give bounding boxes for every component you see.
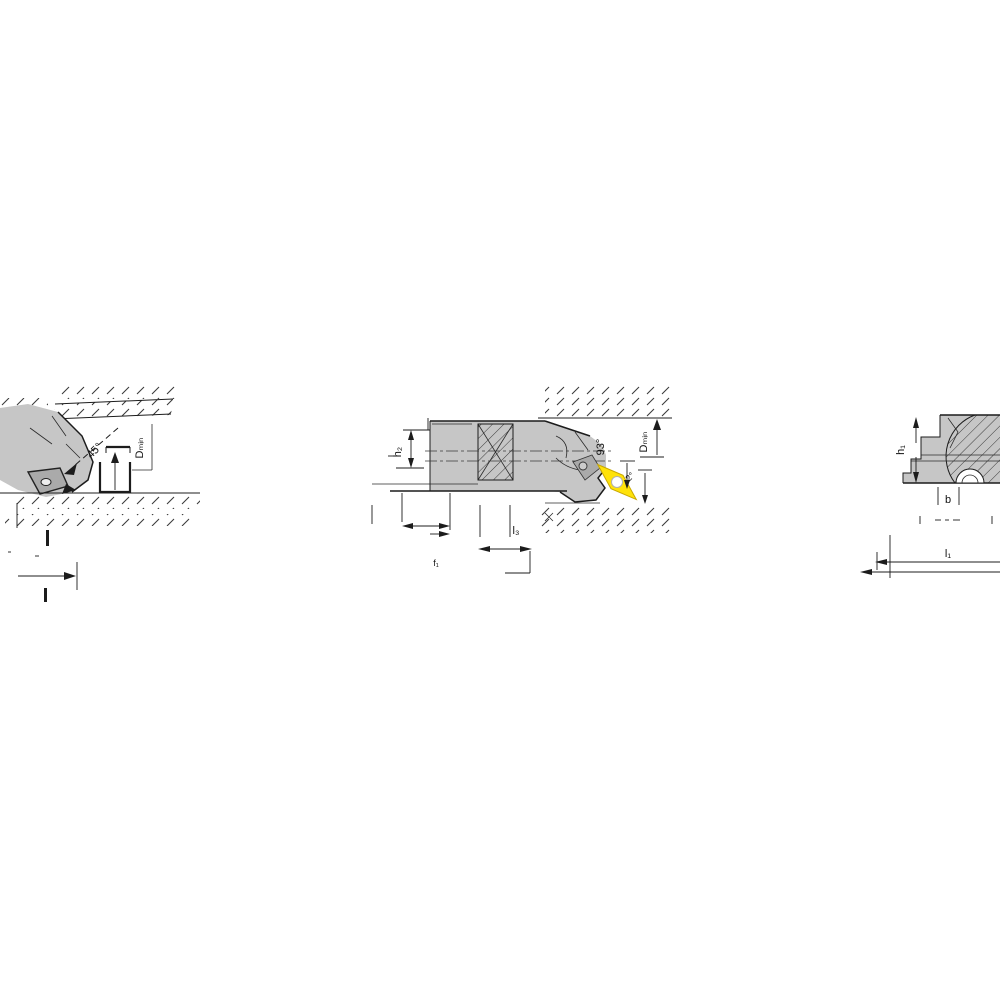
h1-label: h₁ xyxy=(895,445,907,455)
clamp-screw-icon xyxy=(41,479,51,486)
workpiece-hatch-top xyxy=(538,386,675,418)
dimension-f1: f₁ xyxy=(402,493,450,568)
middle-view-side: h₂ 93° 2° Dₘᵢₙ xyxy=(372,386,675,573)
h2-label: h₂ xyxy=(392,447,404,457)
technical-drawing-boring-bar: 45° Dₘᵢₙ xyxy=(0,0,1000,1000)
right-view-section: h₁ b l₁ xyxy=(860,415,1000,578)
workpiece-wall-top xyxy=(53,386,175,419)
dimension-l3: l₃ xyxy=(372,505,532,573)
dimension-l1: l₁ xyxy=(860,535,1000,578)
dmin-middle-label: Dₘᵢₙ xyxy=(638,432,650,453)
dimension-h2: h₂ xyxy=(388,418,430,468)
dimension-dmin-middle: Dₘᵢₙ xyxy=(638,419,664,457)
dmin-label: Dₘᵢₙ xyxy=(134,438,146,459)
workpiece-hatch-bottom xyxy=(540,503,672,533)
b-label: b xyxy=(945,494,951,506)
insert-hole xyxy=(612,477,623,488)
dimension-b: b xyxy=(920,487,992,524)
entering-angle-label: 93° xyxy=(595,439,607,456)
l3-label: l₃ xyxy=(513,525,520,537)
left-view-corner-detail: 45° Dₘᵢₙ xyxy=(0,386,200,602)
f1-label: f₁ xyxy=(433,558,439,568)
workpiece-wall-bottom xyxy=(0,493,200,526)
insert-screw-icon xyxy=(579,462,587,470)
dmin-icon: Dₘᵢₙ xyxy=(100,424,152,492)
clamp-block xyxy=(478,424,513,480)
l1-label: l₁ xyxy=(945,548,951,560)
